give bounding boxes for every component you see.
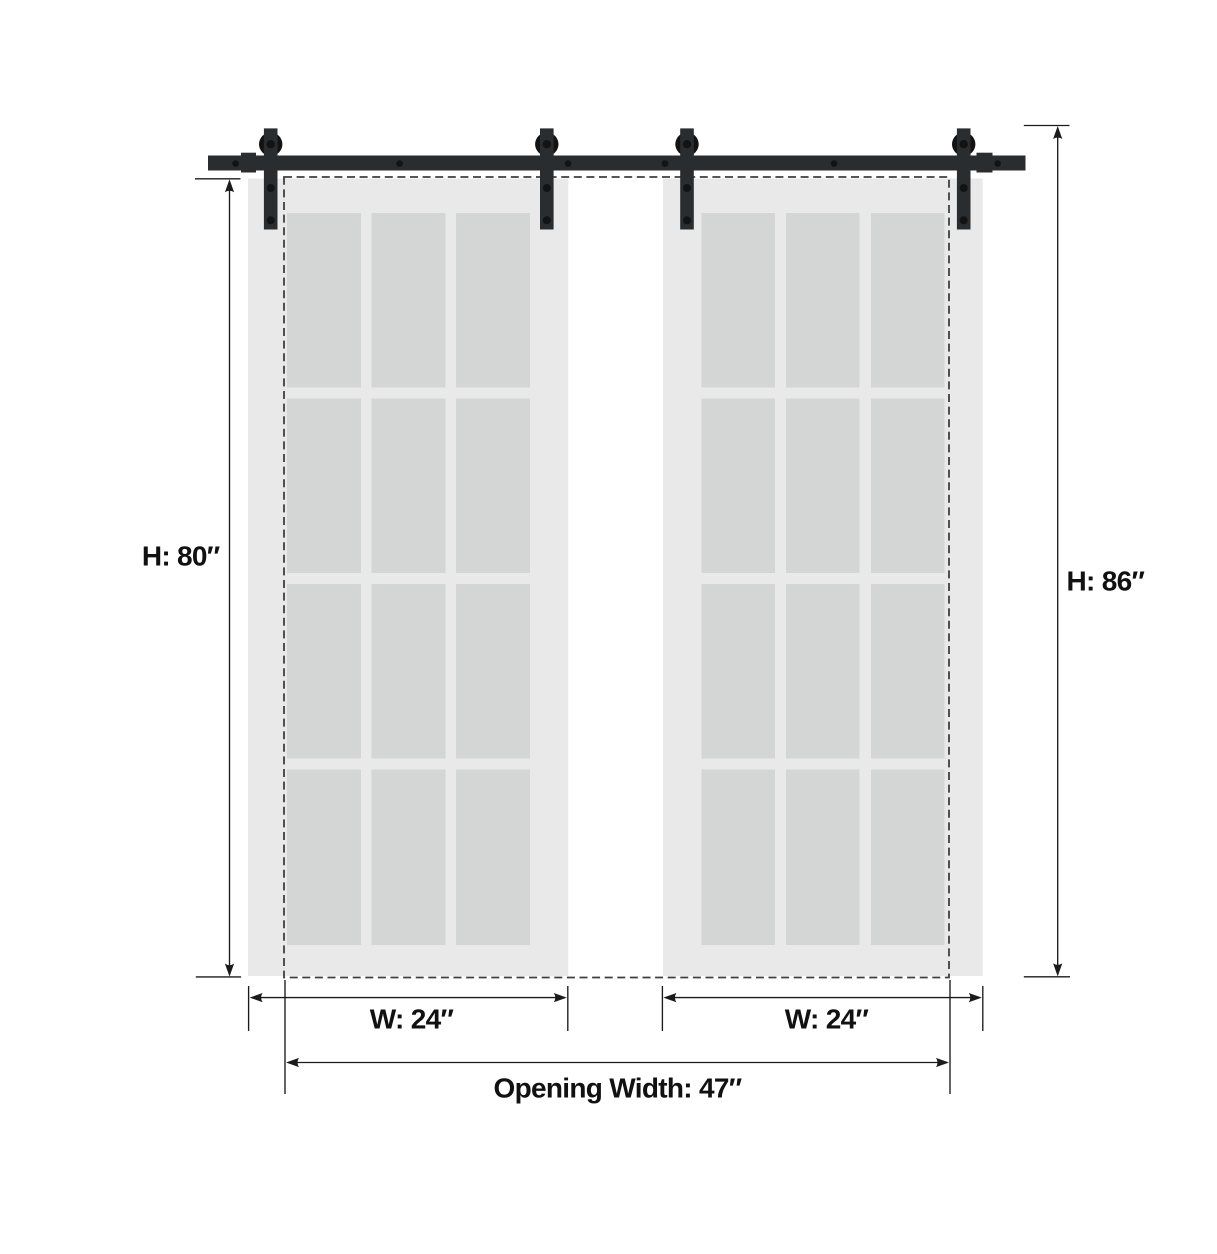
svg-text:Opening Width: 47″: Opening Width: 47″	[494, 1073, 742, 1104]
svg-text:H: 80″: H: 80″	[142, 541, 220, 572]
svg-text:W: 24″: W: 24″	[370, 1004, 454, 1035]
svg-text:H: 86″: H: 86″	[1067, 566, 1145, 597]
svg-text:W: 24″: W: 24″	[785, 1004, 869, 1035]
